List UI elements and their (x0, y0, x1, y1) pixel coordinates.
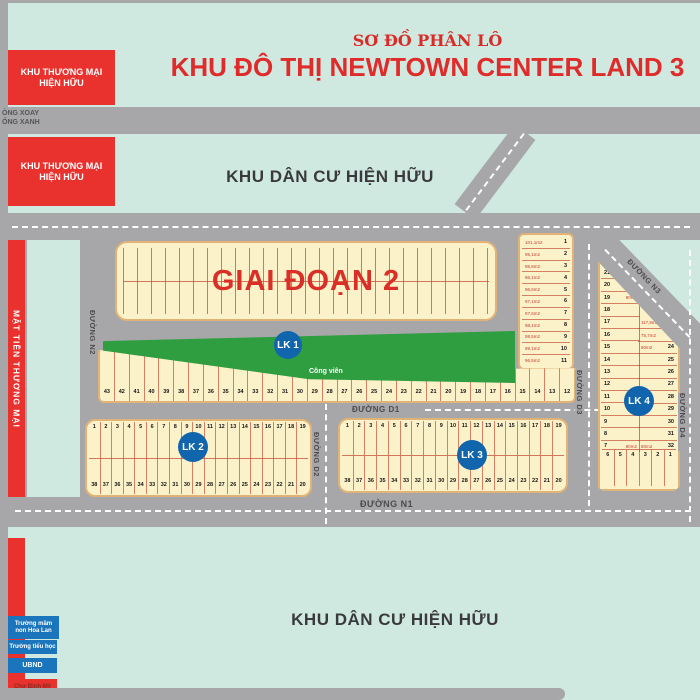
lk3-top-row: 12345678910111213141516171819 (342, 421, 564, 456)
lot-cell: 16 (263, 422, 275, 458)
roundabout-label: ÒNG XOAY ỐNG XANH (2, 109, 40, 127)
lot-cell: 1 (89, 422, 101, 458)
lot-cell: 29 (193, 458, 205, 494)
road-d1-label: ĐƯỜNG D1 (352, 405, 400, 414)
lot-cell: 12 (216, 422, 228, 458)
lot-cell: 14 (240, 422, 252, 458)
lot-row: 18 (601, 304, 640, 316)
lot-row: 25 (638, 354, 677, 366)
road-centerline (12, 226, 690, 228)
lot-cell: 33 (147, 458, 159, 494)
lot-row: 101,1m2 1 (522, 237, 570, 249)
road-top-edge (0, 0, 700, 3)
lot-row: 98,5m2 9 (522, 332, 570, 344)
lot-cell: 22 (274, 458, 286, 494)
phase2-block: GIAI ĐOẠN 2 (115, 241, 497, 321)
lot-cell: 38 (342, 456, 354, 490)
lot-row: 30 (638, 416, 677, 428)
lot-cell: 21 (286, 458, 298, 494)
road-n2-label: ĐƯỜNG N2 (88, 310, 97, 362)
lot-cell: 6 (602, 450, 615, 486)
lot-cell: 23 (263, 458, 275, 494)
commercial-frontage-strip: MẶT TIỀN THƯƠNG MẠI (8, 240, 25, 497)
open-parcel (27, 240, 80, 497)
lot-row: 98,1m2 8 (522, 320, 570, 332)
lot-cell: 4 (124, 422, 136, 458)
residential-zone-top-label: KHU DÂN CƯ HIỆN HỮU (180, 167, 480, 187)
lot-cell: 4 (377, 421, 389, 455)
lot-cell: 23 (518, 456, 530, 490)
lot-row: 95,8m2 3 (522, 261, 570, 273)
lot-cell: 6 (401, 421, 413, 455)
road-n1-label: ĐƯỜNG N1 (360, 499, 413, 509)
lot-cell: 42 (115, 348, 130, 401)
lot-cell: 32 (158, 458, 170, 494)
phase2-label: GIAI ĐOẠN 2 (117, 265, 495, 298)
lot-cell: 25 (240, 458, 252, 494)
lot-cell: 35 (124, 458, 136, 494)
road-centerline (325, 404, 327, 524)
commercial-zone-2: KHU THƯƠNG MẠIHIỆN HỮU (8, 137, 115, 206)
lk3-badge: LK 3 (457, 440, 487, 470)
map-subtitle: SƠ ĐỒ PHÂN LÔ (150, 31, 700, 50)
lot-row: 80m2 24 (638, 342, 677, 354)
lot-row: 9 (601, 416, 640, 428)
lot-row: 96,6m2 5 (522, 284, 570, 296)
lot-cell: 21 (541, 456, 553, 490)
lot-cell: 31 (424, 456, 436, 490)
road-left-edge (0, 0, 8, 700)
lot-cell: 19 (297, 422, 308, 458)
road-centerline (588, 244, 590, 506)
lot-cell: 37 (354, 456, 366, 490)
road-centerline (689, 250, 691, 522)
commercial-zone-1: KHU THƯƠNG MẠIHIỆN HỮU (8, 50, 115, 105)
lot-cell: 7 (412, 421, 424, 455)
lot-cell: 26 (228, 458, 240, 494)
lot-row: 26 (638, 366, 677, 378)
lot-cell: 18 (541, 421, 553, 455)
lot-cell: 1 (665, 450, 677, 486)
lot-cell: 24 (506, 456, 518, 490)
lot-cell: 5 (135, 422, 147, 458)
lk3-bottom-row: 38373635343332313029282726252423222120 (342, 456, 564, 490)
strip-block-lots-1-11: 101,1m2 1 95,1m2 2 95,8m2 3 96,1m2 4 96,… (518, 233, 574, 370)
lot-cell: 3 (365, 421, 377, 455)
lot-cell: 2 (652, 450, 665, 486)
map-title: KHU ĐÔ THỊ NEWTOWN CENTER LAND 3 (150, 52, 700, 83)
lot-cell: 36 (112, 458, 124, 494)
lot-cell: 24 (251, 458, 263, 494)
lot-cell: 32 (412, 456, 424, 490)
lot-row: 13 (601, 366, 640, 378)
facility-primary-school: Trường tiểu học (8, 640, 57, 654)
lot-cell: 8 (424, 421, 436, 455)
lot-cell: 5 (389, 421, 401, 455)
lot-cell: 16 (518, 421, 530, 455)
lot-row: 14 (601, 354, 640, 366)
lot-cell: 22 (530, 456, 542, 490)
lot-cell: 2 (101, 422, 113, 458)
lot-cell: 4 (627, 450, 640, 486)
lot-cell: 27 (216, 458, 228, 494)
subdivision-map: ÒNG XOAY ỐNG XANH ĐƯỜNG N3 SƠ ĐỒ PHÂN LÔ… (0, 0, 700, 700)
lk2-badge: LK 2 (178, 432, 208, 462)
lot-cell: 35 (377, 456, 389, 490)
lot-row: 8 (601, 428, 640, 440)
road-bottom-bar (0, 688, 565, 700)
lot-cell: 14 (495, 421, 507, 455)
lk4-bottom-row: 654321 (602, 449, 676, 486)
lot-cell: 34 (389, 456, 401, 490)
lot-cell: 17 (274, 422, 286, 458)
lot-cell: 15 (506, 421, 518, 455)
lot-cell: 7 (158, 422, 170, 458)
lot-cell: 28 (205, 458, 217, 494)
lot-row: 31 (638, 428, 677, 440)
road-d2-label: ĐƯỜNG D2 (312, 432, 321, 492)
lot-cell: 1 (342, 421, 354, 455)
lot-cell: 43 (100, 348, 115, 401)
lot-cell: 37 (101, 458, 113, 494)
lot-cell: 13 (228, 422, 240, 458)
lot-cell: 3 (112, 422, 124, 458)
lot-row: 99,1m2 10 (522, 343, 570, 355)
lot-row: 15 (601, 341, 640, 353)
lot-cell: 6 (147, 422, 159, 458)
lot-row: 17 (601, 317, 640, 329)
facility-ubnd: UBND (8, 658, 57, 673)
lot-cell: 15 (251, 422, 263, 458)
lot-cell: 17 (530, 421, 542, 455)
lot-cell: 20 (297, 458, 308, 494)
lk4-badge: LK 4 (624, 386, 654, 416)
park-label: Công viên (309, 368, 343, 375)
road-centerline (15, 510, 691, 512)
road-d4-label: ĐƯỜNG D4 (678, 393, 687, 451)
lk3-block: 12345678910111213141516171819 3837363534… (338, 418, 568, 493)
lot-cell: 36 (365, 456, 377, 490)
lot-cell: 9 (436, 421, 448, 455)
lot-row: 97,1m2 6 (522, 296, 570, 308)
facility-kindergarten: Trường mầm non Hoa Lan (8, 616, 59, 639)
lk2-bottom-row: 38373635343332313029282726252423222120 (89, 458, 308, 494)
lot-row: 16 (601, 329, 640, 341)
lot-cell: 25 (495, 456, 507, 490)
lot-cell: 5 (615, 450, 628, 486)
lot-cell: 30 (436, 456, 448, 490)
road-horizontal-upper (0, 107, 700, 134)
lot-cell: 30 (182, 458, 194, 494)
lot-cell: 2 (354, 421, 366, 455)
lot-cell: 19 (553, 421, 564, 455)
lot-cell: 31 (170, 458, 182, 494)
road-d3-label: ĐƯỜNG D3 (575, 370, 584, 428)
lk1-badge: LK 1 (274, 331, 302, 359)
strip-lot-rows: 101,1m2 1 95,1m2 2 95,8m2 3 96,1m2 4 96,… (522, 237, 570, 366)
lot-cell: 38 (89, 458, 101, 494)
lot-cell: 18 (286, 422, 298, 458)
lot-row: 95,1m2 2 (522, 249, 570, 261)
residential-zone-bottom-label: KHU DÂN CƯ HIỆN HỮU (245, 610, 545, 630)
lot-cell: 3 (640, 450, 653, 486)
lot-cell: 33 (401, 456, 413, 490)
lot-row: 97,6m2 7 (522, 308, 570, 320)
lot-row: 96,1m2 4 (522, 272, 570, 284)
lot-row: 96,5m2 11 (522, 355, 570, 366)
lot-cell: 20 (553, 456, 564, 490)
lot-cell: 34 (135, 458, 147, 494)
